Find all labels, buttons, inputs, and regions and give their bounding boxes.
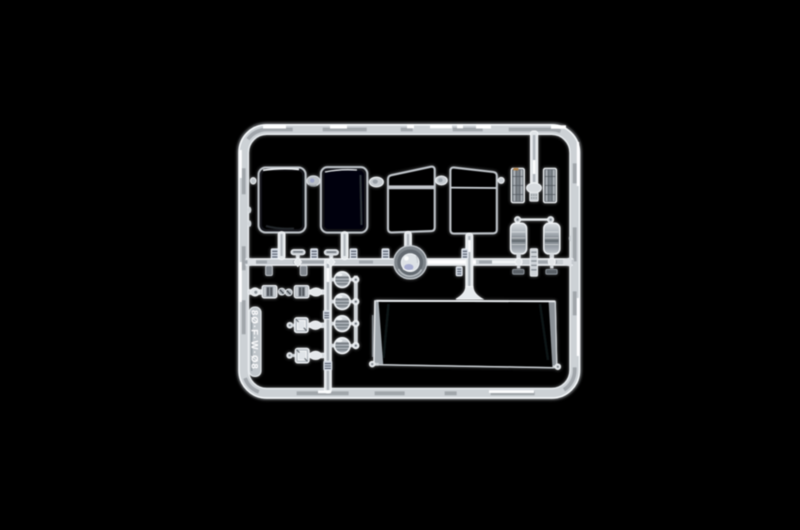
svg-text:8Ø·F·W·Ø8: 8Ø·F·W·Ø8 xyxy=(249,310,260,370)
